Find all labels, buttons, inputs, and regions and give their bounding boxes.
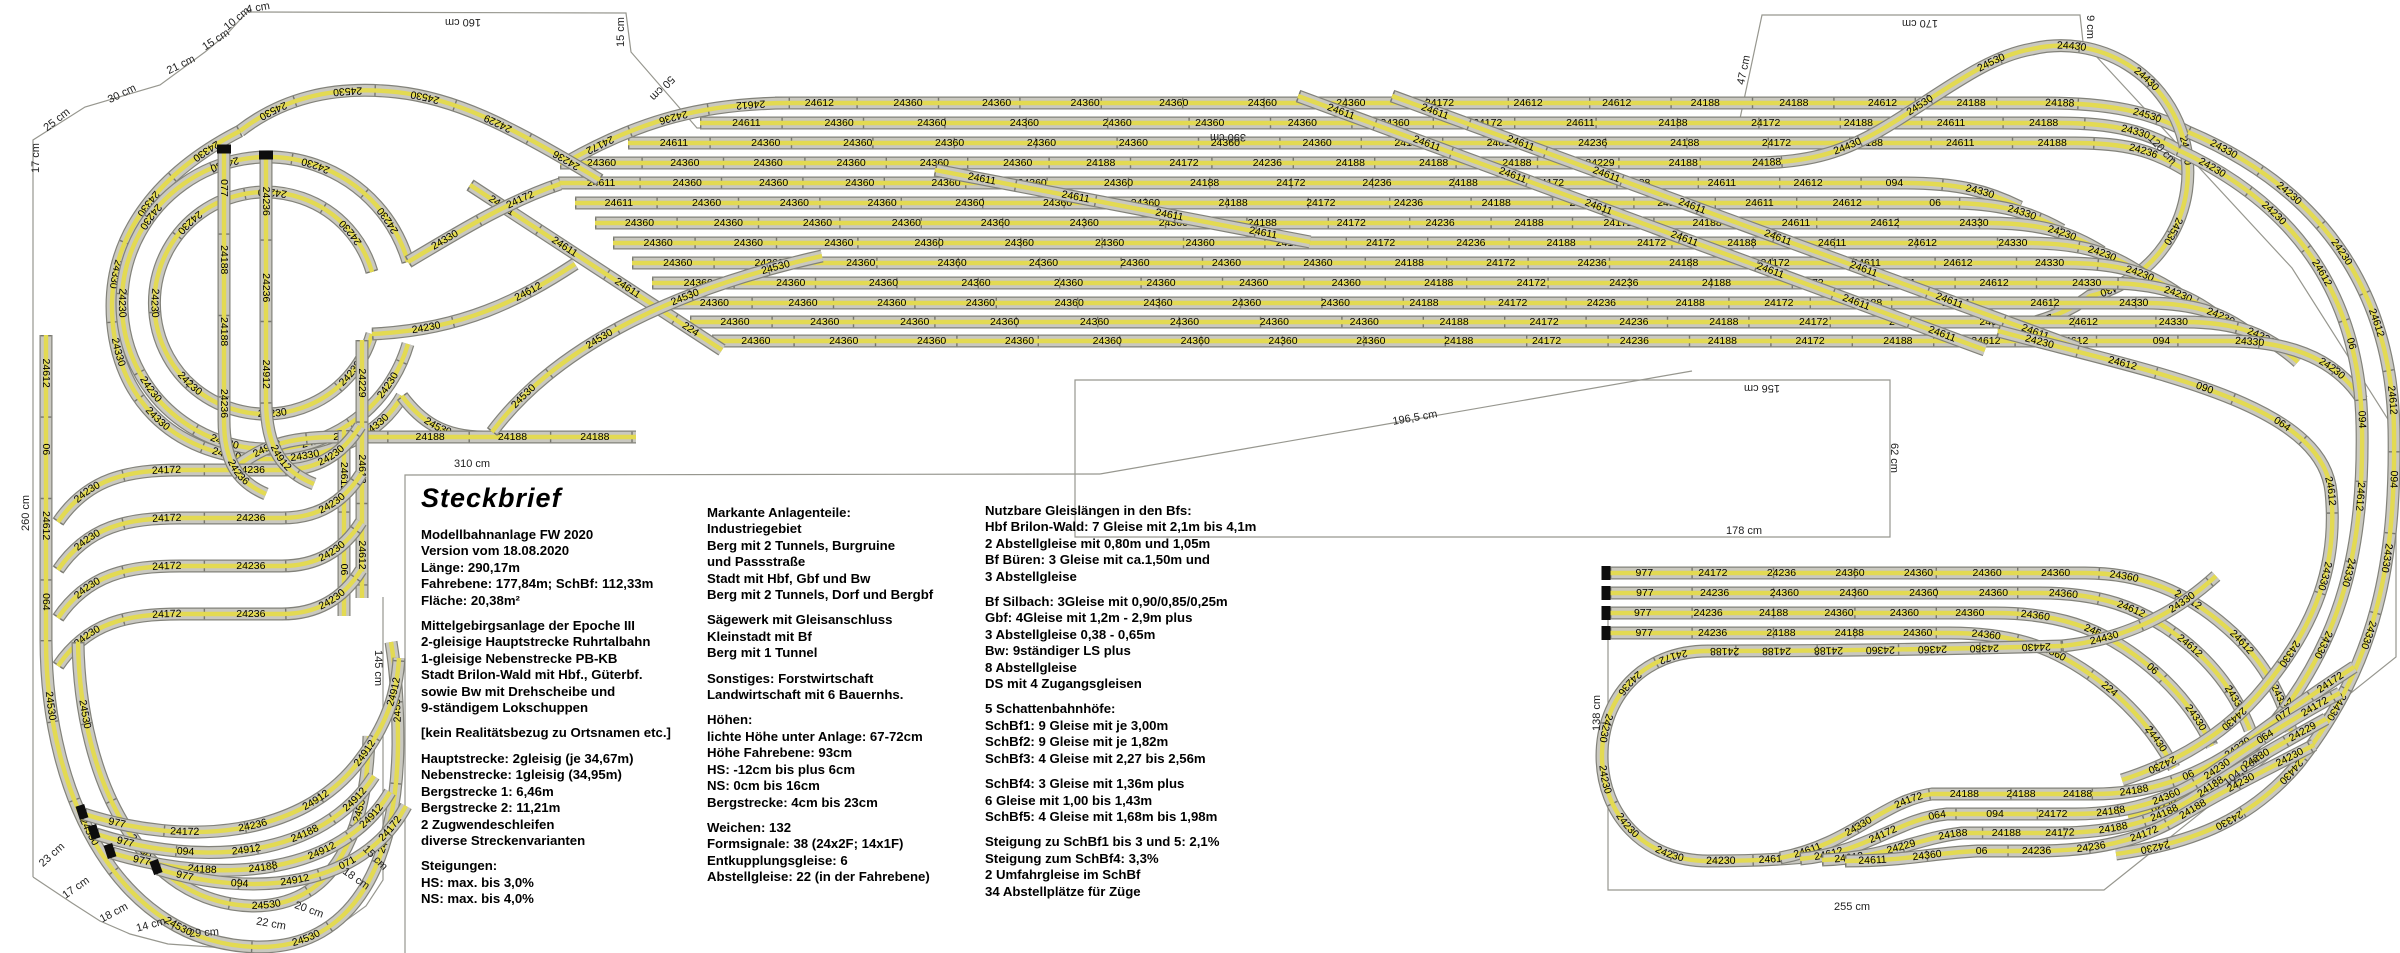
spec-line: Hauptstrecke: 2gleisig (je 34,67m): [421, 751, 671, 767]
dimension-label: 15 cm: [615, 17, 627, 47]
track-run[interactable]: 246120624612064: [40, 335, 52, 640]
track-part-number: 24188: [1669, 257, 1698, 269]
track-part-number: 24172: [1276, 177, 1305, 189]
track-part-number: 24611: [1782, 217, 1811, 229]
track-part-number: 24360: [720, 316, 749, 328]
track-part-number: 24236: [1767, 567, 1796, 579]
track-part-number: 24612: [40, 511, 52, 540]
track-part-number: 24188: [1444, 335, 1473, 347]
spec-line: Steigung zum SchBf4: 3,3%: [985, 851, 1256, 867]
track-part-number: 24612: [2227, 627, 2256, 656]
track-part-number: 24360: [1095, 237, 1124, 249]
track-part-number: 24360: [1972, 567, 2001, 579]
track-part-number: 24612: [2309, 257, 2334, 288]
track-part-number: 24360: [955, 197, 984, 209]
track-part-number: 24360: [892, 217, 921, 229]
track-part-number: 977: [1635, 627, 1653, 639]
track-part-number: 24360: [1005, 237, 1034, 249]
dimension-label: 17 cm: [60, 874, 91, 901]
track-part-number: 24172: [1498, 297, 1527, 309]
spec-line: Formsignale: 38 (24x2F; 14x1F): [707, 836, 933, 852]
track-part-number: 24330: [2072, 277, 2101, 289]
track-part-number: 24360: [845, 177, 874, 189]
track-part-number: 24188: [1658, 117, 1687, 129]
dimension-label: 18 cm: [98, 901, 130, 926]
spec-line: Version vom 18.08.2020: [421, 543, 671, 559]
track-part-number: 24612: [1833, 197, 1862, 209]
spec-line: Entkupplungsgleise: 6: [707, 853, 933, 869]
track-part-number: 24230: [300, 155, 332, 176]
track-part-number: 24612: [1870, 217, 1899, 229]
track-part-number: 24360: [625, 217, 654, 229]
track-part-number: 24612: [1979, 277, 2008, 289]
track-part-number: 24188: [1708, 335, 1737, 347]
track-part-number: 24330: [429, 227, 460, 252]
track-part-number: 24360: [1866, 644, 1895, 656]
track-part-number: 24236: [1698, 627, 1727, 639]
track-part-number: 24360: [966, 297, 995, 309]
track-part-number: 24188: [2096, 803, 2127, 819]
track-part-number: 24236: [1694, 607, 1723, 619]
track-part-number: 24230: [2197, 155, 2228, 180]
track-part-number: 24360: [751, 137, 780, 149]
track-part-number: 24188: [1814, 644, 1844, 656]
spec-line: Kleinstadt mit Bf: [707, 629, 933, 645]
track-part-number: 24612: [2366, 307, 2387, 339]
spec-line: 2 Abstellgleise mit 0,80m und 1,05m: [985, 536, 1256, 552]
track-part-number: 094: [1986, 808, 2004, 820]
dimension-label: 255 cm: [1834, 901, 1870, 913]
track-part-number: 24330: [2208, 137, 2240, 161]
track-part-number: 24172: [2045, 827, 2075, 839]
spec-line: Stadt Brilon-Wald mit Hbf., Güterbf.: [421, 667, 671, 683]
track-part-number: 24172: [1169, 157, 1198, 169]
spec-line: 3 Abstellgleise: [985, 569, 1256, 585]
track-part-number: 24360: [1027, 137, 1056, 149]
spec-line: SchBf5: 4 Gleise mit 1,68m bis 1,98m: [985, 809, 1256, 825]
track-part-number: 24360: [663, 257, 692, 269]
track-part-number: 24360: [1260, 316, 1289, 328]
dimension-label: 196,5 cm: [1392, 408, 1439, 428]
track-part-number: 24360: [1070, 217, 1099, 229]
track-part-number: 24360: [1159, 97, 1188, 109]
track-part-number: 24188: [1670, 137, 1699, 149]
spec-line: [421, 609, 671, 618]
track-part-number: 24360: [1185, 237, 1214, 249]
track-part-number: 24360: [1005, 335, 1034, 347]
spec-line: und Passstraße: [707, 554, 933, 570]
track-part-number: 24188: [1676, 297, 1705, 309]
track-part-number: 24360: [1824, 607, 1853, 619]
track-part-number: 24360: [869, 277, 898, 289]
track-part-number: 24230: [1706, 855, 1736, 867]
track-part-number: 24172: [1529, 316, 1558, 328]
spec-line: Fläche: 20,38m²: [421, 593, 671, 609]
track-part-number: 24188: [1449, 177, 1478, 189]
track-part-number: 24188: [248, 859, 279, 875]
track-part-number: 24360: [824, 237, 853, 249]
track-part-number: 24360: [893, 97, 922, 109]
dimension-label: 20 cm: [293, 899, 325, 921]
track-part-number: 24360: [1969, 642, 1999, 655]
track-part-number: 24230: [175, 208, 205, 237]
track-part-number: 24236: [236, 512, 265, 524]
spec-line: 1-gleisige Nebenstrecke PB-KB: [421, 651, 671, 667]
track-part-number: 094: [176, 845, 195, 858]
spec-line: Hbf Brilon-Wald: 7 Gleise mit 2,1m bis 4…: [985, 519, 1256, 535]
track-part-number: 24612: [2030, 297, 2059, 309]
track-part-number: 24360: [937, 257, 966, 269]
track-part-number: 24230: [2259, 199, 2289, 228]
spec-line: Berg mit 2 Tunnels, Burgruine: [707, 538, 933, 554]
track-part-number: 24330: [2358, 619, 2379, 651]
track-part-number: 24172: [1517, 277, 1546, 289]
spec-line: [707, 603, 933, 612]
track-part-number: 24188: [1219, 197, 1248, 209]
spec-line: Markante Anlagenteile:: [707, 505, 933, 521]
track-part-number: 24360: [2049, 587, 2079, 601]
track-part-number: 24236: [1578, 137, 1607, 149]
buffer-stop: [1602, 566, 1611, 580]
track-part-number: 24360: [1080, 316, 1109, 328]
track-part-number: 24188: [1691, 97, 1720, 109]
track-part-number: 094: [2153, 335, 2171, 347]
track-part-number: 06: [1929, 197, 1941, 209]
track-part-number: 24236: [260, 187, 272, 216]
track-part-number: 24612: [1908, 237, 1937, 249]
track-part-number: 24360: [1146, 277, 1175, 289]
track-part-number: 24612: [356, 540, 368, 569]
buffer-stop: [1602, 606, 1611, 620]
track-part-number: 24360: [1955, 607, 1984, 619]
track-part-number: 24912: [231, 842, 262, 858]
track-part-number: 24611: [1841, 292, 1872, 313]
spec-line: SchBf2: 9 Gleise mit je 1,82m: [985, 734, 1256, 750]
track-part-number: 24360: [700, 297, 729, 309]
spec-line: Fahrebene: 177,84m; SchBf: 112,33m: [421, 576, 671, 592]
track-part-number: 24172: [1698, 567, 1727, 579]
track-part-number: 24360: [1839, 587, 1868, 599]
track-part-number: 24611: [1745, 197, 1774, 209]
track-part-number: 24188: [1419, 157, 1448, 169]
track-part-number: 24360: [917, 335, 946, 347]
track-part-number: 24230: [148, 288, 161, 319]
spec-line: [985, 767, 1256, 776]
track-part-number: 24188: [1779, 97, 1808, 109]
spec-line: [707, 662, 933, 671]
track-part-number: 24530: [43, 691, 59, 722]
spec-line: Abstellgleise: 22 (in der Fahrebene): [707, 869, 933, 885]
plan-title: Steckbrief: [421, 483, 562, 514]
track-part-number: 24611: [549, 234, 579, 260]
spec-line: 2 Umfahrgleise im SchBf: [985, 867, 1256, 883]
track-part-number: 094: [230, 877, 248, 890]
track-part-number: 24611: [605, 197, 634, 209]
track-part-number: 24330: [2235, 335, 2265, 349]
spec-line: Weichen: 132: [707, 820, 933, 836]
track-part-number: 24230: [2274, 179, 2304, 207]
track-part-number: 24188: [218, 245, 230, 274]
spec-line: [421, 849, 671, 858]
spec-line: Bf Silbach: 3Gleise mit 0,90/0,85/0,25m: [985, 594, 1256, 610]
track-part-number: 094: [1886, 177, 1904, 189]
track-part-number: 24360: [824, 117, 853, 129]
buffer-stop: [1602, 626, 1611, 640]
dimension-label: 30 cm: [106, 82, 138, 106]
spec-line: Höhen:: [707, 712, 933, 728]
track-part-number: 064: [40, 593, 52, 611]
track-part-number: 24360: [810, 316, 839, 328]
track-part-number: 24330: [2311, 629, 2334, 661]
track-part-number: 24360: [846, 257, 875, 269]
spec-line: Länge: 290,17m: [421, 560, 671, 576]
track-part-number: 24430: [2132, 65, 2162, 94]
track-part-number: 24236: [2022, 845, 2052, 857]
spec-line: Berg mit 2 Tunnels, Dorf und Bergbf: [707, 587, 933, 603]
track-part-number: 24360: [1268, 335, 1297, 347]
track-part-number: 077: [218, 179, 230, 197]
spec-line: sowie Bw mit Drehscheibe und: [421, 684, 671, 700]
spec-line: SchBf3: 4 Gleise mit 2,27 bis 2,56m: [985, 751, 1256, 767]
track-part-number: 24360: [1054, 277, 1083, 289]
track-part-number: 24912: [300, 787, 331, 813]
track-part-number: 24172: [152, 560, 182, 573]
track-part-number: 094: [2387, 470, 2400, 488]
track-part-number: 24330: [2213, 808, 2245, 832]
track-part-number: 24172: [170, 825, 200, 838]
track-part-number: 24360: [1120, 257, 1149, 269]
track-part-number: 24172: [1751, 117, 1780, 129]
track-part-number: 24360: [1303, 137, 1332, 149]
spec-line: diverse Streckenvarianten: [421, 833, 671, 849]
spec-line: 5 Schattenbahnhöfe:: [985, 701, 1256, 717]
spec-line: 8 Abstellgleise: [985, 660, 1256, 676]
track-part-number: 24360: [843, 137, 872, 149]
track-part-number: 24230: [1596, 765, 1614, 796]
spec-line: Sonstiges: Forstwirtschaft: [707, 671, 933, 687]
track-part-number: 24188: [1669, 157, 1698, 169]
track-part-number: 24611: [1937, 117, 1966, 129]
spec-line: Bf Büren: 3 Gleise mit ca.1,50m und: [985, 552, 1256, 568]
track-part-number: 24188: [1395, 257, 1424, 269]
spec-line: Industriegebiet: [707, 521, 933, 537]
dimension-label: 9 cm: [2084, 15, 2096, 39]
track-part-number: 24360: [829, 335, 858, 347]
spec-line: [985, 692, 1256, 701]
spec-line: Modellbahnanlage FW 2020: [421, 527, 671, 543]
track-part-number: 24611: [1708, 177, 1737, 189]
spec-line: DS mit 4 Zugangsgleisen: [985, 676, 1256, 692]
track-part-number: 24360: [1248, 97, 1277, 109]
track-part-number: 24230: [1613, 811, 1641, 841]
spec-line: Nebenstrecke: 1gleisig (34,95m): [421, 767, 671, 783]
spec-line: SchBf1: 9 Gleise mit je 3,00m: [985, 718, 1256, 734]
spec-line: 6 Gleise mit 1,00 bis 1,43m: [985, 793, 1256, 809]
track-part-number: 24360: [1903, 627, 1932, 639]
track-part-number: 24188: [1336, 157, 1365, 169]
track-part-number: 24360: [780, 197, 809, 209]
track-part-number: 24360: [673, 177, 702, 189]
track-part-number: 24360: [1356, 335, 1385, 347]
track-part-number: 24188: [580, 431, 609, 443]
track-part-number: 24612: [2069, 316, 2098, 328]
track-part-number: 24360: [753, 157, 782, 169]
track-part-number: 24611: [1411, 133, 1442, 154]
spec-line: [985, 825, 1256, 834]
spec-line: Steigungen:: [421, 858, 671, 874]
track-part-number: 24360: [981, 217, 1010, 229]
steckbrief-panel: Steckbrief Modellbahnanlage FW 2020Versi…: [405, 475, 1335, 953]
dimension-label: 160 cm: [445, 16, 481, 28]
track-part-number: 24188: [1514, 217, 1543, 229]
track-part-number: 24360: [900, 316, 929, 328]
spec-line: 2 Zugwendeschleifen: [421, 817, 671, 833]
track-part-number: 24611: [1858, 854, 1887, 867]
track-part-number: 24360: [935, 137, 964, 149]
spec-line: Steigung zu SchBf1 bis 3 und 5: 2,1%: [985, 834, 1256, 850]
track-part-number: 24188: [218, 317, 230, 346]
track-part-number: 24530: [1975, 51, 2007, 74]
track-part-number: 24188: [1190, 177, 1219, 189]
spec-line: Höhe Fahrebene: 93cm: [707, 745, 933, 761]
track-part-number: 06: [338, 564, 350, 576]
track-part-number: 06: [40, 444, 52, 456]
track-part-number: 977: [1636, 567, 1654, 579]
track-part-number: 24188: [1956, 97, 1985, 109]
spec-line: [421, 742, 671, 751]
track-part-number: 24530: [509, 382, 538, 411]
track-part-number: 24360: [644, 237, 673, 249]
spec-line: Landwirtschaft mit 6 Bauernhs.: [707, 687, 933, 703]
track-part-number: 24188: [2038, 137, 2067, 149]
dimension-label: 18 cm: [340, 865, 371, 892]
track-part-number: 24188: [498, 431, 527, 443]
track-part-number: 24612: [513, 280, 545, 304]
spec-line: Bw: 9ständiger LS plus: [985, 643, 1256, 659]
track-part-number: 24188: [1547, 237, 1576, 249]
track-part-number: 24912: [260, 360, 272, 389]
spec-line: 2-gleisige Hauptstrecke Ruhrtalbahn: [421, 634, 671, 650]
track-part-number: 24360: [803, 217, 832, 229]
track-part-number: 24360: [1770, 587, 1799, 599]
track-part-number: 24330: [2379, 543, 2395, 574]
track-part-number: 24360: [1093, 335, 1122, 347]
track-part-number: 24330: [1998, 237, 2027, 249]
track-part-number: 06: [1976, 845, 1988, 857]
track-part-number: 24188: [1762, 645, 1791, 657]
track-part-number: 24360: [734, 237, 763, 249]
track-part-number: 24612: [1602, 97, 1631, 109]
track-part-number: 24188: [1992, 827, 2021, 839]
track-part-number: 24360: [1979, 587, 2008, 599]
track-part-number: 24236: [1578, 257, 1607, 269]
track-part-number: 24612: [735, 98, 765, 112]
track-part-number: 24188: [2029, 117, 2058, 129]
buffer-stop: [1602, 586, 1611, 600]
track-part-number: 24360: [788, 297, 817, 309]
spec-line: [707, 811, 933, 820]
track-part-number: 24360: [1350, 316, 1379, 328]
spec-line: Nutzbare Gleislängen in den Bfs:: [985, 503, 1256, 519]
dimension-label: 17 cm: [30, 143, 42, 173]
track-run[interactable]: 242292461224612: [356, 340, 368, 598]
spec-line: lichte Höhe unter Anlage: 67-72cm: [707, 729, 933, 745]
track-part-number: 24360: [961, 277, 990, 289]
track-part-number: 24230: [175, 369, 205, 398]
track-part-number: 24612: [1793, 177, 1822, 189]
track-part-number: 24172: [151, 464, 181, 477]
track-part-number: 24330: [1959, 217, 1988, 229]
spec-line: Bergstrecke: 4cm bis 23cm: [707, 795, 933, 811]
track-part-number: 24360: [741, 335, 770, 347]
track-part-number: 977: [1636, 587, 1654, 599]
spec-line: Berg mit 1 Tunnel: [707, 645, 933, 661]
track-part-number: 24188: [1482, 197, 1511, 209]
track-part-number: 24172: [1799, 316, 1828, 328]
track-part-number: 24172: [1486, 257, 1515, 269]
track-part-number: 24360: [1912, 848, 1942, 863]
spec-line: NS: 0cm bis 16cm: [707, 778, 933, 794]
track-part-number: 24188: [1709, 316, 1738, 328]
track-part-number: 24188: [1702, 277, 1731, 289]
track-part-number: 24236: [1615, 668, 1644, 698]
track-part-number: 24360: [1143, 297, 1172, 309]
spec-line: SchBf4: 3 Gleise mit 1,36m plus: [985, 776, 1256, 792]
dimension-label: 170 cm: [1902, 17, 1938, 29]
track-part-number: 24360: [1029, 257, 1058, 269]
spec-line: HS: max. bis 3,0%: [421, 875, 671, 891]
track-part-number: 24360: [1918, 643, 1948, 656]
track-run[interactable]: 246122423624172: [565, 98, 790, 163]
track-part-number: 24530: [584, 326, 615, 351]
track-part-number: 24360: [1321, 297, 1350, 309]
track-part-number: 24188: [1950, 788, 1979, 800]
spec-line: [707, 703, 933, 712]
track-plan-page: 2461224360243602436024360243602436024172…: [0, 0, 2400, 953]
track-part-number: 24530: [1905, 92, 1936, 118]
track-part-number: 24360: [2041, 567, 2070, 579]
track-part-number: 24236: [1587, 297, 1616, 309]
spec-line: 3 Abstellgleise 0,38 - 0,65m: [985, 627, 1256, 643]
track-part-number: 24360: [1071, 97, 1100, 109]
track-part-number: 24360: [1104, 177, 1133, 189]
track-part-number: 24188: [1424, 277, 1453, 289]
spec-line: 34 Abstellplätze für Züge: [985, 884, 1256, 900]
track-part-number: 24188: [1766, 627, 1795, 639]
track-part-number: 24172: [1337, 217, 1366, 229]
buffer-stop: [217, 145, 231, 154]
track-part-number: 24360: [714, 217, 743, 229]
track-part-number: 24236: [1620, 335, 1649, 347]
track-run[interactable]: 2423024612: [372, 264, 575, 336]
track-part-number: 24330: [2159, 316, 2188, 328]
track-part-number: 24172: [1762, 137, 1791, 149]
track-part-number: 24360: [982, 97, 1011, 109]
track-part-number: 24172: [1893, 790, 1925, 811]
track-part-number: 24360: [1890, 607, 1919, 619]
track-part-number: 24236: [1362, 177, 1391, 189]
track-part-number: 24236: [218, 389, 230, 418]
dimension-label: 260 cm: [20, 495, 32, 531]
track-part-number: 24360: [759, 177, 788, 189]
track-part-number: 24236: [1609, 277, 1638, 289]
track-part-number: 24188: [1439, 316, 1468, 328]
track-part-number: 24236: [1619, 316, 1648, 328]
track-part-number: 24188: [2045, 97, 2075, 110]
track-part-number: 24360: [917, 117, 946, 129]
spec-line: [985, 585, 1256, 594]
track-part-number: 24236: [236, 608, 265, 620]
